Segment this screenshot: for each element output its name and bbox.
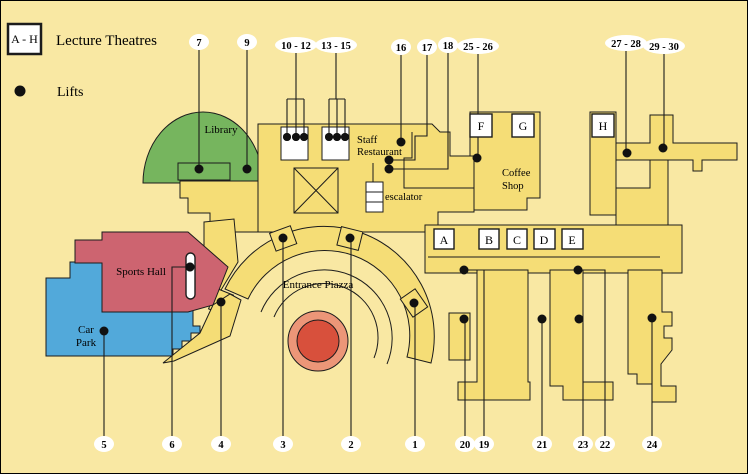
lift-label-22: 22	[600, 440, 611, 451]
lift-label-21: 21	[537, 440, 548, 451]
theatre-label-H: H	[599, 119, 608, 133]
coffee-shop-label-1: Coffee	[502, 168, 531, 179]
theatre-label-A: A	[440, 233, 449, 247]
lift-label-18: 18	[443, 41, 454, 52]
campus-map-svg: 7 9 10 - 12 13 - 15 16 17 18 25 - 26	[0, 0, 748, 474]
theatre-label-E: E	[568, 233, 575, 247]
lift-label-16: 16	[396, 43, 407, 54]
lift-label-1: 1	[412, 440, 417, 451]
theatre-label-C: C	[513, 233, 521, 247]
sports-hall-lift-dot	[186, 263, 195, 272]
library-label: Library	[205, 124, 238, 136]
lift-label-23: 23	[578, 440, 589, 451]
car-park-label-2: Park	[76, 337, 97, 349]
lift-label-2: 2	[348, 440, 353, 451]
legend-lecture-theatres-label: Lecture Theatres	[56, 33, 157, 49]
legend-lift-dot	[15, 86, 26, 97]
theatre-A: A	[434, 229, 454, 249]
lift-label-9: 9	[244, 38, 249, 49]
lift-label-6: 6	[169, 440, 174, 451]
lift-label-7: 7	[196, 38, 201, 49]
theatre-D: D	[534, 229, 555, 249]
lift-label-19: 19	[479, 440, 490, 451]
legend-lifts-label: Lifts	[57, 85, 83, 100]
theatre-H: H	[592, 114, 614, 137]
staff-restaurant-label-2: Restaurant	[357, 147, 402, 158]
lift-label-20: 20	[460, 440, 471, 451]
staff-restaurant-label-1: Staff	[357, 135, 378, 146]
lift-label-4: 4	[218, 440, 224, 451]
car-park-label-1: Car	[78, 324, 94, 336]
lift-label-24: 24	[647, 440, 658, 451]
theatre-label-G: G	[519, 119, 528, 133]
lift-label-13-15: 13 - 15	[321, 41, 351, 52]
legend-range-label: A - H	[11, 32, 38, 46]
theatre-label-D: D	[540, 233, 549, 247]
stairwell-box	[294, 168, 338, 213]
library-lift-lobby	[178, 163, 230, 180]
coffee-shop-label-2: Shop	[502, 181, 524, 192]
lift-label-10-12: 10 - 12	[281, 41, 311, 52]
lift-label-29-30: 29 - 30	[649, 42, 679, 53]
theatre-F: F	[470, 114, 492, 137]
theatre-C: C	[507, 229, 527, 249]
theatre-label-F: F	[478, 119, 485, 133]
entrance-piazza-label: Entrance Piazza	[283, 279, 354, 291]
sports-hall-lift-shaft	[186, 253, 195, 299]
lift-label-27-28: 27 - 28	[611, 39, 641, 50]
theatre-label-B: B	[485, 233, 493, 247]
escalator-label: escalator	[385, 192, 423, 203]
theatre-E: E	[562, 229, 583, 249]
lift-label-3: 3	[280, 440, 285, 451]
campus-map: 7 9 10 - 12 13 - 15 16 17 18 25 - 26	[0, 0, 748, 474]
lift-label-25-26: 25 - 26	[463, 42, 493, 53]
lift-label-5: 5	[101, 440, 106, 451]
piazza-circle-inner	[297, 320, 339, 362]
lift-label-17: 17	[422, 43, 433, 54]
theatre-B: B	[479, 229, 499, 249]
sports-hall-label: Sports Hall	[116, 266, 166, 278]
theatre-G: G	[512, 114, 534, 137]
